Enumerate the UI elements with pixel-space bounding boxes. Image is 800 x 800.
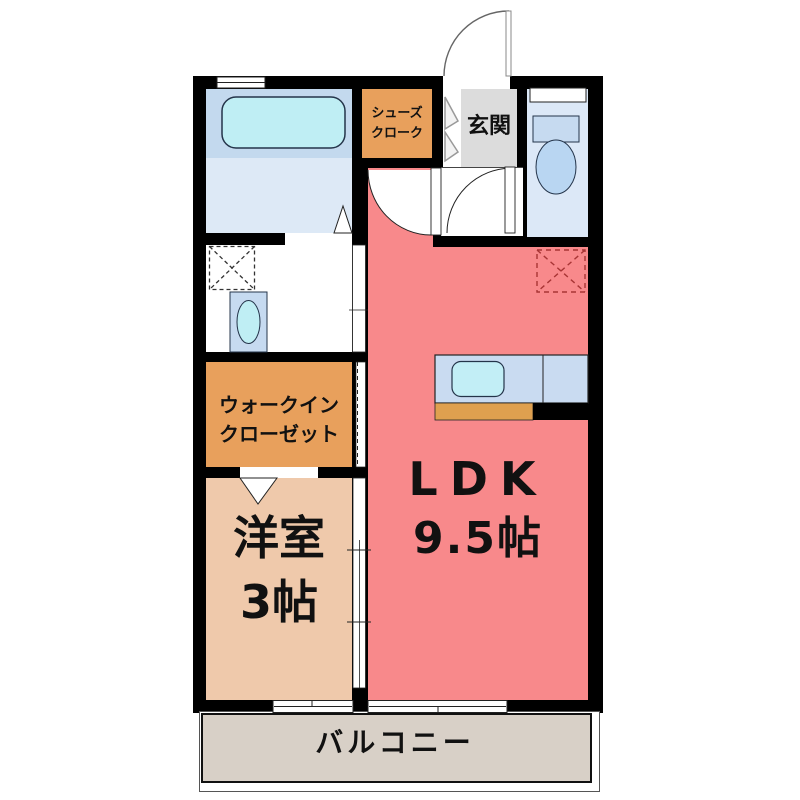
walk-in-closet-label-line1: ウォークイン bbox=[206, 391, 352, 420]
ldk-name: LDK bbox=[368, 450, 588, 510]
bathroom-tub-zone bbox=[206, 89, 352, 159]
bathroom-door-opening bbox=[285, 233, 352, 245]
floor-plan: シューズ クローク 玄関 ウォークイン クローゼット 洋室 3帖 LDK 9.5… bbox=[0, 0, 800, 800]
entrance-door-opening bbox=[443, 76, 510, 89]
western-room-label: 洋室 3帖 bbox=[206, 506, 352, 635]
bathroom-floor-zone bbox=[206, 158, 352, 233]
entrance-door-arc-icon bbox=[444, 11, 511, 76]
entrance-label: 玄関 bbox=[461, 114, 517, 139]
western-room-name: 洋室 bbox=[206, 506, 352, 570]
shoe-closet-door-opening bbox=[443, 89, 461, 167]
ldk-label: LDK 9.5帖 bbox=[368, 450, 588, 567]
western-room-size: 3帖 bbox=[206, 570, 352, 634]
shoe-closet-label-line1: シューズ bbox=[362, 104, 432, 124]
washroom bbox=[206, 245, 352, 352]
hallway bbox=[441, 167, 523, 236]
closet-door-opening bbox=[240, 467, 318, 478]
walk-in-closet-label: ウォークイン クローゼット bbox=[206, 391, 352, 449]
walk-in-closet-label-line2: クローゼット bbox=[206, 420, 352, 449]
ldk-upper bbox=[368, 168, 433, 247]
balcony-label: バルコニー bbox=[200, 727, 590, 759]
shoe-closet-label-line2: クローク bbox=[362, 124, 432, 144]
ldk-size: 9.5帖 bbox=[368, 510, 588, 567]
toilet-room bbox=[527, 89, 588, 237]
shoe-closet-label: シューズ クローク bbox=[362, 104, 432, 143]
